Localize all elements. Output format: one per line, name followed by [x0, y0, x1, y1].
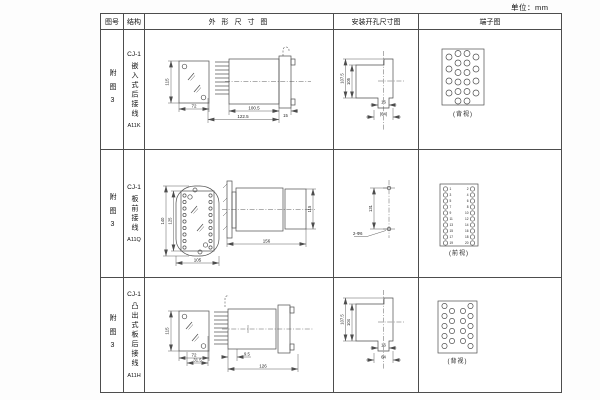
structure-cell-row1: CJ-1 嵌入式后接线 A11K: [124, 30, 145, 150]
header-outline: 外 形 尺 寸 图: [145, 14, 334, 30]
svg-text:18: 18: [465, 235, 469, 239]
seal-mark-icon: [188, 73, 195, 81]
fig-no-row3: 附图3: [107, 314, 117, 356]
terminal-view-label: (前视): [449, 249, 469, 257]
outline-cell-row3: 115 72 3: [145, 278, 334, 392]
cutout-profile: [356, 59, 393, 108]
outline-drawing-a11k: 115 72 100.5: [145, 30, 334, 150]
dim-gap: 9.5: [244, 351, 250, 356]
mounting-cell-row1: 107.5 105 16 (64): [334, 30, 419, 150]
dim-slot-width: 16: [381, 343, 386, 348]
svg-text:2: 2: [467, 187, 469, 191]
type-row3: 凸出式板后接线: [129, 302, 139, 369]
svg-text:7: 7: [450, 205, 452, 209]
svg-text:5: 5: [450, 199, 452, 203]
dim-front-height: 115: [165, 327, 170, 335]
seal-mark-icon: [194, 85, 201, 93]
terminal-diagram-a11k: (背视): [419, 30, 561, 150]
svg-text:12: 12: [465, 217, 469, 221]
outline-cell-row1: 115 72 100.5: [145, 30, 334, 150]
cutout-profile: [356, 298, 393, 351]
side-view: 100.5 122.5 15: [208, 47, 311, 123]
svg-text:8: 8: [467, 205, 469, 209]
svg-text:14: 14: [465, 223, 469, 227]
hook-icon: [225, 296, 229, 307]
fig-no-cell-row1: 附图3: [101, 30, 124, 150]
outline-drawing-a11h: 115 72 3: [145, 278, 334, 392]
dim-height-outer: 107.5: [340, 314, 345, 325]
dim-front-height-inner: 125: [168, 217, 173, 225]
structure-cell-row3: CJ-1 凸出式板后接线 A11H: [124, 278, 145, 392]
front-view: 115 72: [165, 311, 210, 361]
code-row2: A11Q: [127, 237, 141, 243]
terminal-view-label: (背视): [448, 357, 468, 365]
dim-height-inner: 104: [346, 318, 351, 326]
spec-table: 图号 结构 外 形 尺 寸 图 安装开孔尺寸图 端子图 附图3 CJ-1 嵌入式…: [100, 13, 562, 393]
dim-side-height: 115: [307, 205, 312, 212]
hook-icon: [283, 47, 289, 56]
terminal-pins: [442, 303, 473, 348]
terminal-diagram-a11q: 1 3 5 7 9 11 13 15 17 19 2 4 6 8 10 12 1: [419, 150, 561, 278]
terminal-cell-row1: (背视): [419, 30, 561, 150]
svg-text:15: 15: [450, 229, 454, 233]
dim-width: 64: [381, 355, 386, 360]
mounting-cell-row3: 107.5 104 16 64: [334, 278, 419, 392]
dim-body-length: 100.5: [248, 105, 260, 110]
svg-text:20: 20: [465, 241, 469, 245]
svg-text:4: 4: [467, 193, 469, 197]
terminal-cell-row2: 1 3 5 7 9 11 13 15 17 19 2 4 6 8 10 12 1: [419, 150, 561, 278]
svg-text:10: 10: [465, 211, 469, 215]
terminal-pins: [443, 187, 474, 245]
header-mounting: 安装开孔尺寸图: [334, 14, 419, 30]
dim-front-width: 105: [194, 257, 202, 262]
header-terminal: 端子图: [419, 14, 561, 30]
fig-no-cell-row2: 附图3: [101, 150, 124, 278]
unit-label: 单位：mm: [511, 2, 549, 13]
svg-text:17: 17: [450, 235, 454, 239]
front-view: 115 72: [165, 61, 210, 112]
svg-text:16: 16: [465, 229, 469, 233]
dim-hole-distance: 131: [368, 204, 373, 212]
front-view: 140 125 105: [160, 186, 219, 266]
structure-cell-row2: CJ-1 板前接线 A11Q: [124, 150, 145, 278]
model-row3: CJ-1: [127, 291, 141, 298]
header-structure: 结构: [124, 14, 145, 30]
model-row2: CJ-1: [127, 184, 141, 191]
code-row3: A11H: [127, 373, 140, 379]
header-fig-no: 图号: [101, 14, 124, 30]
svg-text:19: 19: [450, 241, 454, 245]
mounting-drawing-a11q: 131 2-Φ6: [334, 150, 419, 278]
seal-mark-icon: [186, 322, 193, 330]
dim-front-height-outer: 140: [160, 217, 165, 225]
dim-width: (64): [380, 112, 388, 117]
document-page: 单位：mm 图号 结构 外 形 尺 寸 图 安装开孔尺寸图 端子图 附图3 CJ…: [0, 0, 600, 400]
mounting-drawing-a11k: 107.5 105 16 (64): [334, 30, 419, 150]
dim-height-outer: 107.5: [340, 73, 345, 84]
dim-height-inner: 105: [346, 77, 351, 85]
terminal-numbers: 1 3 5 7 9 11 13 15 17 19 2 4 6 8 10 12 1: [450, 187, 469, 245]
terminal-cell-row3: (背视): [419, 278, 561, 392]
svg-text:9: 9: [450, 211, 452, 215]
side-view: 31.5 9.5 126: [187, 296, 313, 372]
seal-mark-icon: [192, 334, 199, 342]
terminal-pins: [446, 51, 479, 105]
mounting-cell-row2: 131 2-Φ6: [334, 150, 419, 278]
svg-text:6: 6: [467, 199, 469, 203]
outline-cell-row2: 140 125 105 156: [145, 150, 334, 278]
outline-drawing-a11q: 140 125 105 156: [145, 150, 334, 278]
dim-front-height: 115: [165, 78, 170, 86]
seal-mark-icon: [191, 206, 198, 214]
seal-mark-icon: [197, 224, 204, 232]
dim-side-length: 156: [263, 238, 271, 243]
type-row2: 板前接线: [129, 195, 139, 233]
code-row1: A11K: [127, 123, 140, 129]
side-view: 156 115: [222, 181, 316, 247]
terminal-diagram-a11h: (背视): [419, 278, 561, 392]
hole-spec-label: 2-Φ6: [353, 231, 363, 236]
svg-text:13: 13: [450, 223, 454, 227]
svg-text:3: 3: [450, 193, 452, 197]
dim-total-length: 122.5: [237, 114, 249, 119]
terminal-view-label: (背视): [453, 110, 473, 118]
dim-front-width: 72: [191, 103, 197, 108]
fig-no-row1: 附图3: [107, 69, 117, 111]
fig-no-cell-row3: 附图3: [101, 278, 124, 392]
svg-text:1: 1: [450, 187, 452, 191]
mounting-drawing-a11h: 107.5 104 16 64: [334, 278, 419, 392]
fig-no-row2: 附图3: [107, 193, 117, 235]
dim-flange: 15: [283, 113, 288, 118]
dim-slot-width: 16: [381, 100, 386, 105]
model-row1: CJ-1: [127, 51, 141, 58]
type-row1: 嵌入式后接线: [129, 62, 139, 119]
svg-text:11: 11: [450, 217, 454, 221]
dim-total-length: 126: [259, 363, 267, 368]
dim-pin-length: 31.5: [193, 357, 202, 362]
